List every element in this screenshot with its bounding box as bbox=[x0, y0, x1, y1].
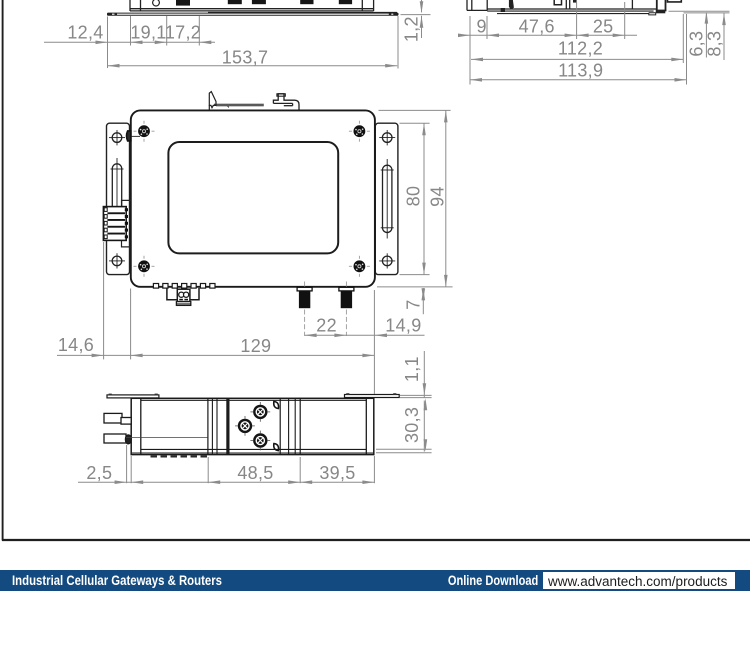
svg-text:112,2: 112,2 bbox=[558, 39, 603, 59]
svg-text:17,2: 17,2 bbox=[165, 23, 201, 43]
svg-text:19,1: 19,1 bbox=[130, 23, 166, 43]
svg-text:1,1: 1,1 bbox=[402, 356, 422, 382]
svg-text:94: 94 bbox=[428, 186, 448, 207]
svg-text:1,2: 1,2 bbox=[402, 16, 422, 42]
svg-text:22: 22 bbox=[316, 315, 337, 335]
svg-text:9: 9 bbox=[476, 16, 486, 36]
svg-text:30,3: 30,3 bbox=[402, 407, 422, 443]
svg-text:153,7: 153,7 bbox=[222, 48, 269, 68]
svg-text:8,3: 8,3 bbox=[705, 31, 725, 57]
svg-text:14,6: 14,6 bbox=[58, 335, 94, 355]
svg-text:14,9: 14,9 bbox=[385, 315, 421, 335]
svg-text:2,5: 2,5 bbox=[86, 463, 112, 483]
svg-text:6,3: 6,3 bbox=[687, 31, 707, 57]
svg-text:25: 25 bbox=[593, 16, 614, 36]
svg-text:113,9: 113,9 bbox=[558, 60, 603, 80]
svg-text:12,4: 12,4 bbox=[67, 23, 103, 43]
svg-text:39,5: 39,5 bbox=[319, 463, 355, 483]
svg-text:7: 7 bbox=[404, 299, 424, 309]
svg-text:47,6: 47,6 bbox=[519, 16, 555, 36]
svg-text:129: 129 bbox=[240, 336, 271, 356]
svg-text:48,5: 48,5 bbox=[237, 463, 273, 483]
svg-text:80: 80 bbox=[404, 186, 424, 207]
